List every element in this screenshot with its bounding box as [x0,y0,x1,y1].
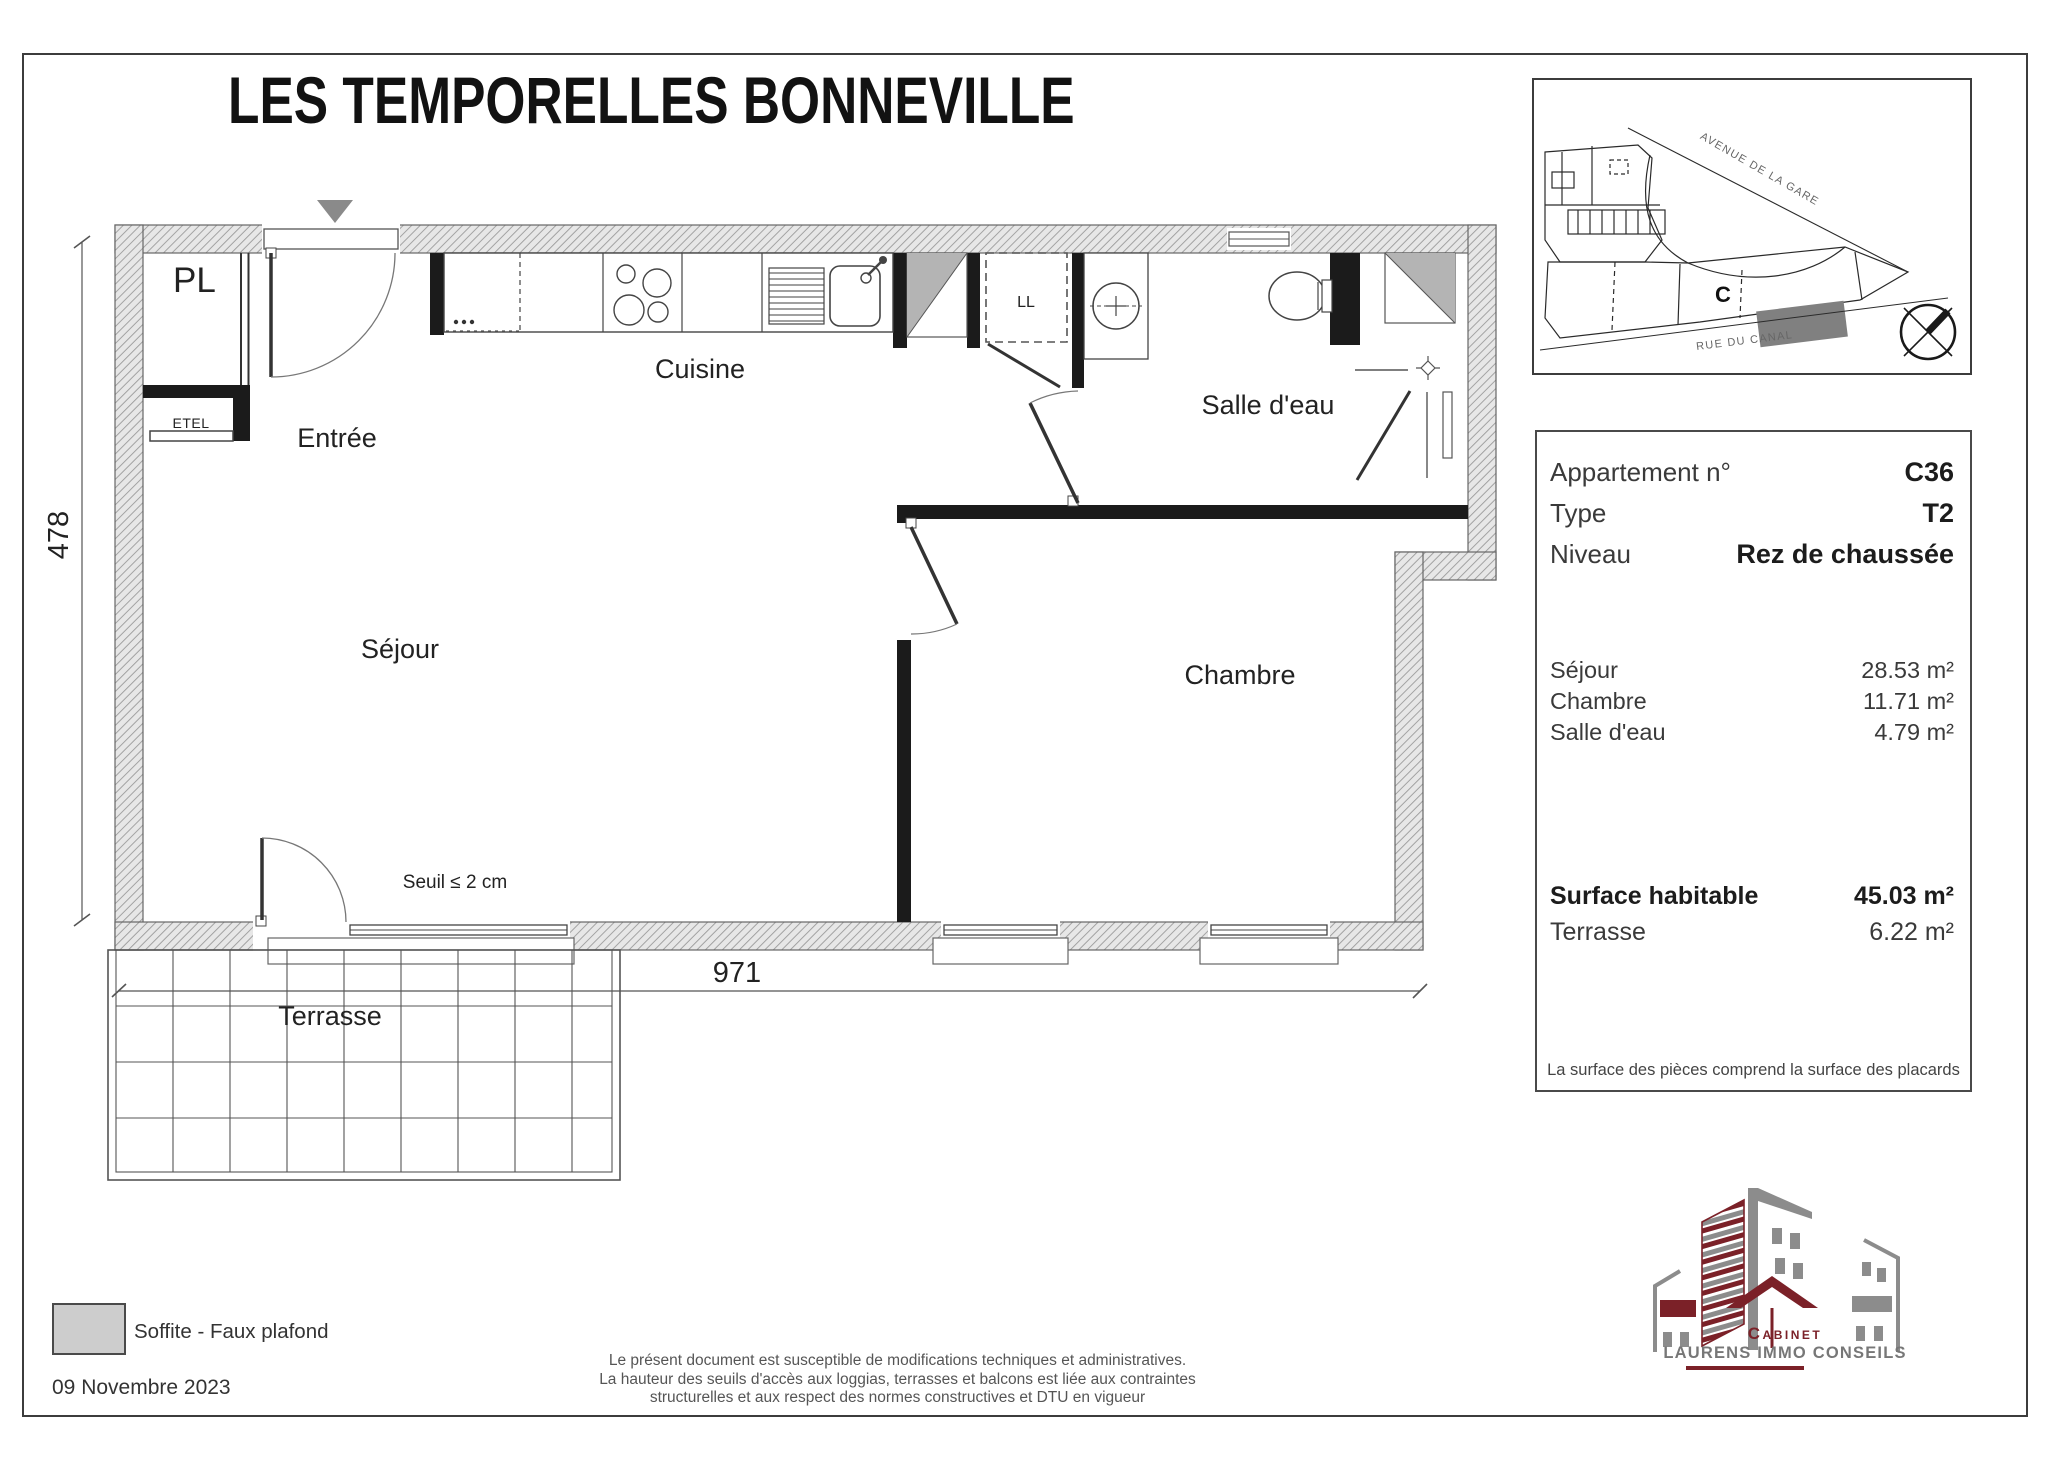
terrace-tiles [108,950,620,1180]
project-title: LES TEMPORELLES BONNEVILLE [228,62,1075,138]
soffite-legend-swatch [52,1303,126,1355]
info-value: Rez de chaussée [1736,534,1954,575]
info-value: C36 [1904,452,1954,493]
sejour-terrace-door [253,838,347,951]
logo-underline [1686,1366,1804,1370]
room-label-ll: LL [1017,294,1035,311]
info-value: T2 [1922,493,1954,534]
total-row-terrasse: Terrasse 6.22 m² [1537,914,1970,950]
logo-company-text: LAURENS IMMO CONSEILS [1655,1344,1915,1363]
dimension-height [74,236,90,926]
info-row-type: Type T2 [1537,493,1970,534]
document-date: 09 Novembre 2023 [52,1376,231,1400]
seuil-annotation: Seuil ≤ 2 cm [403,872,507,893]
room-label-pl: PL [173,261,216,300]
area-label: Salle d'eau [1550,717,1666,748]
apartment-info-panel: Appartement n° C36 Type T2 Niveau Rez de… [1535,430,1972,1092]
pl-closet [241,253,249,385]
room-label-etel: ETEL [172,415,209,431]
info-label: Appartement n° [1550,452,1731,493]
room-label-chambre: Chambre [1184,660,1295,690]
etel-door [150,431,233,441]
disclaimer-text: Le présent document est susceptible de m… [430,1352,1365,1408]
info-label: Niveau [1550,534,1631,575]
info-row-apartment: Appartement n° C36 [1537,452,1970,493]
area-row-sejour: Séjour 28.53 m² [1537,655,1970,686]
total-row-surface-habitable: Surface habitable 45.03 m² [1537,878,1970,914]
toilet [1269,272,1332,320]
disclaimer-line: La hauteur des seuils d'accès aux loggia… [430,1371,1365,1390]
area-label: Séjour [1550,655,1618,686]
total-value: 45.03 m² [1854,878,1954,914]
entrance-door [262,200,400,377]
plan-sheet: PL ETEL Entrée Cuisine LL Salle d'eau Sé… [0,0,2048,1465]
room-label-entree: Entrée [297,423,377,453]
kitchen-counter [444,253,893,332]
info-row-niveau: Niveau Rez de chaussée [1537,534,1970,575]
area-label: Chambre [1550,686,1647,717]
total-label: Terrasse [1550,914,1646,950]
dimension-width [112,984,1427,998]
chambre-door [906,518,957,634]
info-label: Type [1550,493,1606,534]
chambre-window-1 [933,921,1068,964]
washbasin [1084,253,1148,359]
room-label-salle-deau: Salle d'eau [1202,390,1335,420]
exterior-walls [115,225,1496,950]
disclaimer-line: Le présent document est susceptible de m… [430,1352,1365,1371]
chambre-door-opening [896,523,912,640]
room-label-sejour: Séjour [361,634,439,664]
total-label: Surface habitable [1550,878,1758,914]
interior-walls [143,253,1468,922]
chambre-window-2 [1200,921,1338,964]
bathroom-high-window [1227,228,1291,250]
area-row-salle-deau: Salle d'eau 4.79 m² [1537,717,1970,748]
area-row-chambre: Chambre 11.71 m² [1537,686,1970,717]
logo-cabinet-text: Cabinet [1655,1324,1915,1344]
soffite-legend-label: Soffite - Faux plafond [134,1320,329,1344]
total-value: 6.22 m² [1869,914,1954,950]
disclaimer-line: structurelles et aux respect des normes … [430,1389,1365,1408]
area-value: 11.71 m² [1863,686,1954,717]
area-value: 28.53 m² [1861,655,1954,686]
soffite-zone-bathroom [1385,253,1455,323]
entrance-marker-triangle [317,200,353,223]
dimension-width-label: 971 [713,957,761,989]
room-label-cuisine: Cuisine [655,354,745,384]
surface-note: La surface des pièces comprend la surfac… [1537,1061,1970,1080]
ll-door-leaf [988,344,1060,387]
site-map-box [1532,78,1972,375]
soffite-zone-kitchen [907,253,967,337]
dimension-height-label: 478 [43,511,75,559]
area-value: 4.79 m² [1874,717,1954,748]
room-label-terrasse: Terrasse [278,1001,382,1031]
